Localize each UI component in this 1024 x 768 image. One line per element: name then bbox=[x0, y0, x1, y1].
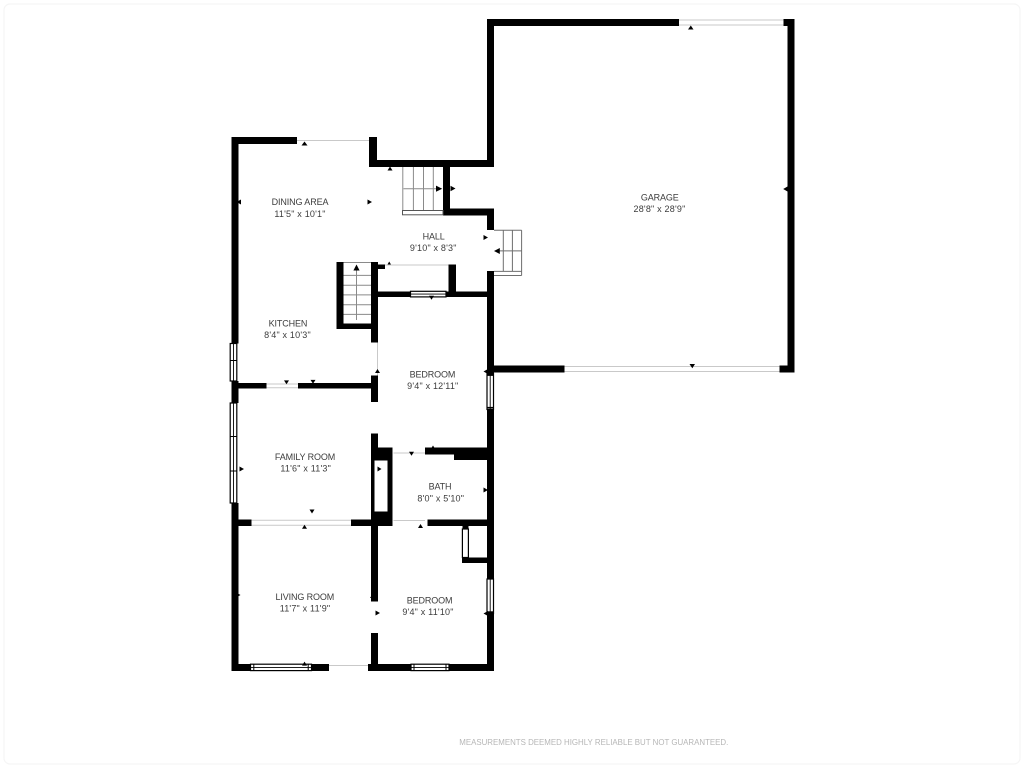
svg-text:KITCHEN: KITCHEN bbox=[269, 318, 308, 328]
svg-text:28'8" x 28'9": 28'8" x 28'9" bbox=[634, 204, 686, 214]
svg-text:11'7" x 11'9": 11'7" x 11'9" bbox=[280, 604, 331, 614]
svg-text:DINING AREA: DINING AREA bbox=[272, 197, 329, 207]
svg-text:FAMILY ROOM: FAMILY ROOM bbox=[275, 452, 335, 462]
svg-text:11'5" x 10'1": 11'5" x 10'1" bbox=[274, 209, 325, 219]
svg-text:BATH: BATH bbox=[429, 482, 452, 492]
svg-text:GARAGE: GARAGE bbox=[641, 193, 679, 203]
svg-text:11'6" x 11'3": 11'6" x 11'3" bbox=[280, 463, 331, 473]
svg-text:BEDROOM: BEDROOM bbox=[407, 595, 453, 605]
svg-text:9'10" x 8'3": 9'10" x 8'3" bbox=[410, 243, 457, 253]
svg-text:LIVING ROOM: LIVING ROOM bbox=[275, 592, 334, 602]
svg-text:HALL: HALL bbox=[423, 232, 445, 242]
svg-text:BEDROOM: BEDROOM bbox=[410, 370, 456, 380]
svg-text:8'0" x 5'10": 8'0" x 5'10" bbox=[417, 493, 464, 503]
svg-text:9'4" x 11'10": 9'4" x 11'10" bbox=[402, 607, 453, 617]
svg-text:9'4" x 12'11": 9'4" x 12'11" bbox=[407, 381, 458, 391]
svg-text:8'4" x 10'3": 8'4" x 10'3" bbox=[264, 330, 311, 340]
svg-text:MEASUREMENTS DEEMED HIGHLY REL: MEASUREMENTS DEEMED HIGHLY RELIABLE BUT … bbox=[459, 738, 728, 747]
